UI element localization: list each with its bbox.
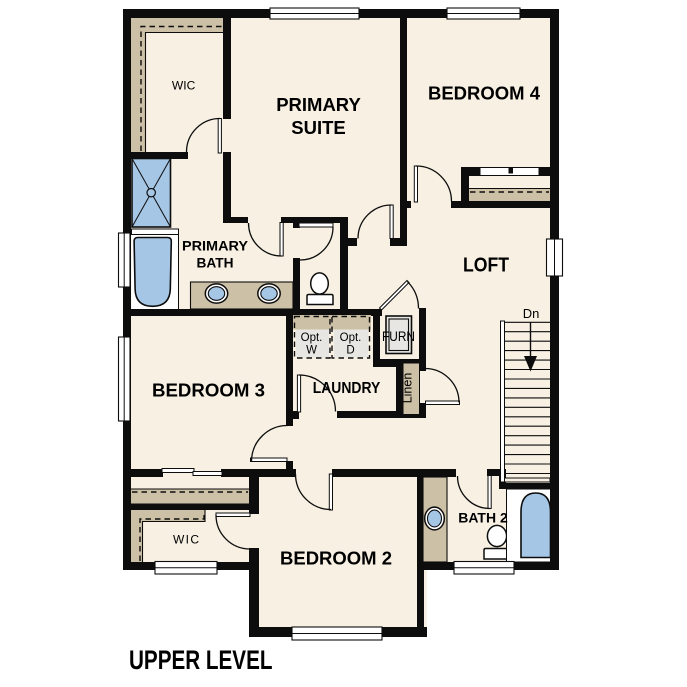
svg-text:W: W (306, 345, 317, 357)
svg-text:WIC: WIC (172, 79, 196, 93)
svg-text:LOFT: LOFT (463, 255, 509, 277)
svg-text:Linen: Linen (401, 373, 415, 404)
svg-text:Opt.: Opt. (301, 332, 323, 344)
svg-text:Opt.: Opt. (340, 332, 362, 344)
svg-text:PRIMARY: PRIMARY (276, 94, 361, 115)
svg-text:SUITE: SUITE (291, 117, 345, 138)
svg-text:D: D (346, 345, 354, 357)
svg-text:UPPER LEVEL: UPPER LEVEL (129, 645, 273, 675)
svg-text:BEDROOM 4: BEDROOM 4 (428, 83, 541, 104)
svg-text:FURN: FURN (382, 328, 415, 344)
svg-text:PRIMARY: PRIMARY (182, 238, 249, 254)
svg-text:BATH: BATH (197, 255, 234, 271)
svg-text:Dn: Dn (523, 306, 540, 321)
svg-text:WIC: WIC (173, 533, 199, 547)
svg-text:BATH 2: BATH 2 (458, 511, 508, 526)
svg-text:LAUNDRY: LAUNDRY (313, 380, 381, 397)
svg-text:BEDROOM 2: BEDROOM 2 (280, 548, 392, 569)
svg-text:BEDROOM 3: BEDROOM 3 (152, 380, 265, 401)
